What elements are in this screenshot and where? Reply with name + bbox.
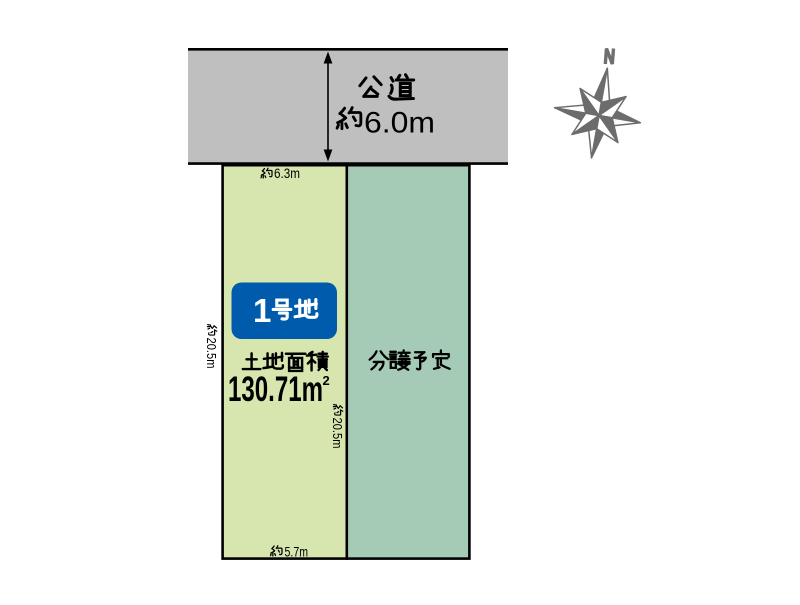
svg-text:20.5m: 20.5m <box>204 338 219 369</box>
svg-text:5.7m: 5.7m <box>285 544 309 560</box>
svg-text:2: 2 <box>323 373 330 388</box>
svg-text:20.5m: 20.5m <box>330 418 345 449</box>
svg-text:6.0m: 6.0m <box>364 106 435 139</box>
svg-text:130.71m: 130.71m <box>228 370 323 409</box>
svg-text:6.3m: 6.3m <box>274 166 300 181</box>
svg-text:1: 1 <box>253 292 271 329</box>
